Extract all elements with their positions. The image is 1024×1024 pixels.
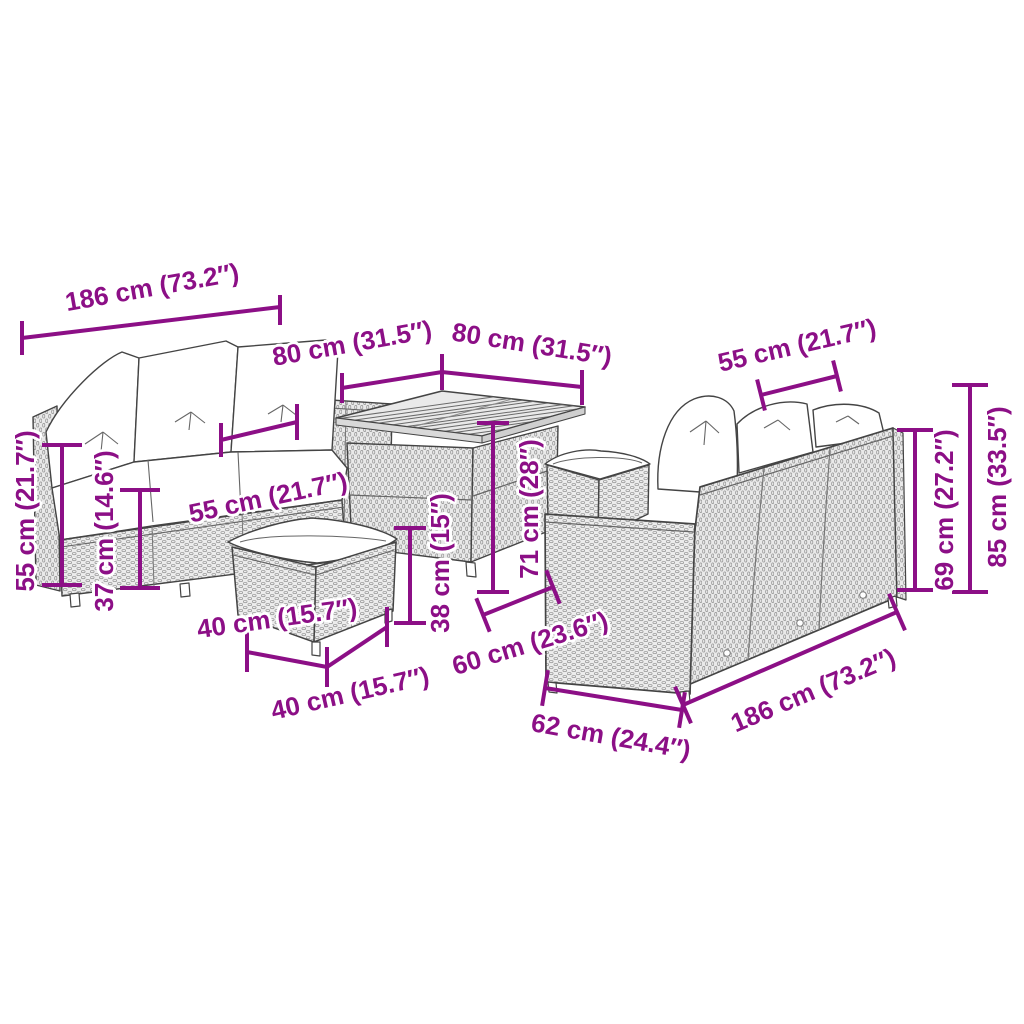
dim-label-sofa-right-back-height: 69 cm (27.2″)	[931, 429, 957, 590]
diagram-drawing	[0, 0, 1024, 1024]
furniture-dimension-diagram: 186 cm (73.2″) 80 cm (31.5″) 80 cm (31.5…	[0, 0, 1024, 1024]
right-sofa-arm	[545, 514, 695, 694]
dim-label-stool-height: 38 cm (15″)	[427, 493, 453, 633]
dim-line-sofa-left-width	[22, 295, 280, 355]
dim-label-sofa-left-seat-height: 37 cm (14.6″)	[91, 450, 117, 611]
dim-label-sofa-left-height: 55 cm (21.7″)	[12, 430, 38, 591]
dim-label-table-height: 71 cm (28″)	[516, 439, 542, 579]
dim-label-sofa-right-total-height: 85 cm (33.5″)	[984, 406, 1010, 567]
